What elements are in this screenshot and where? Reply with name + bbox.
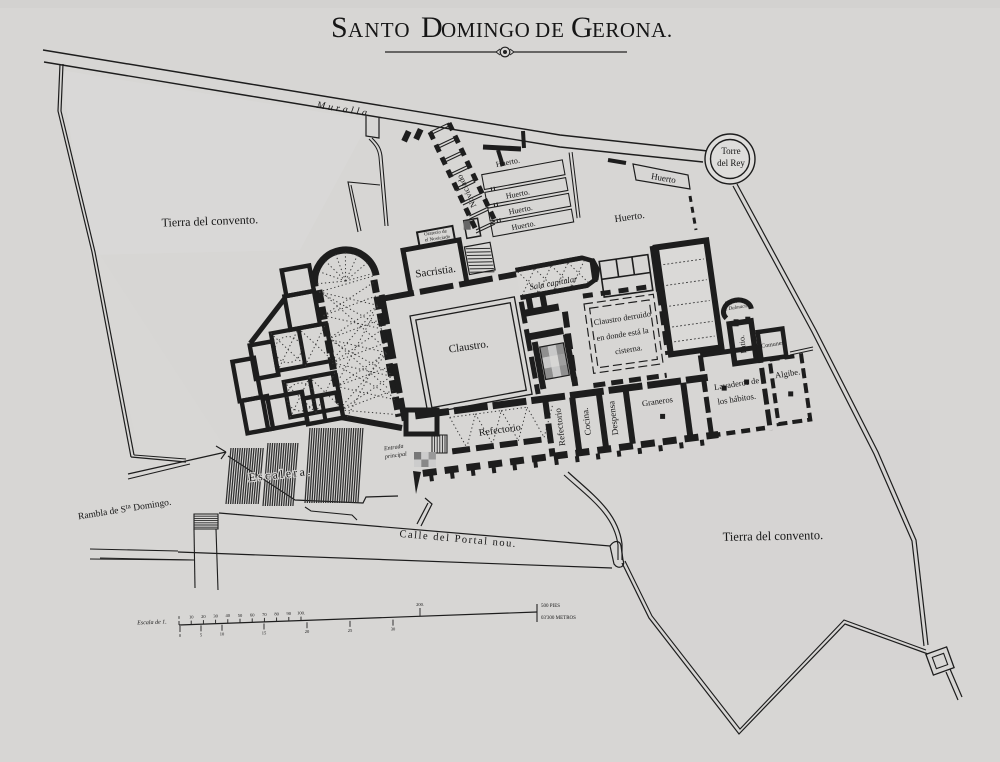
svg-text:G: G bbox=[571, 11, 593, 44]
svg-text:15: 15 bbox=[262, 630, 267, 635]
svg-text:30: 30 bbox=[391, 627, 396, 632]
svg-text:70: 70 bbox=[262, 612, 267, 617]
svg-text:D: D bbox=[421, 11, 443, 44]
svg-text:03'300 METROS: 03'300 METROS bbox=[541, 616, 576, 621]
svg-text:ERONA.: ERONA. bbox=[592, 18, 673, 42]
svg-text:60: 60 bbox=[250, 612, 255, 617]
svg-text:500 PIES: 500 PIES bbox=[541, 604, 560, 609]
svg-text:20: 20 bbox=[305, 629, 310, 634]
svg-text:50: 50 bbox=[238, 613, 243, 618]
svg-text:90: 90 bbox=[287, 611, 292, 616]
svg-text:40: 40 bbox=[226, 613, 231, 618]
svg-text:25: 25 bbox=[348, 628, 353, 633]
svg-text:200.: 200. bbox=[416, 602, 424, 607]
svg-text:DE: DE bbox=[535, 18, 565, 42]
svg-text:S: S bbox=[331, 11, 348, 44]
svg-text:del Rey: del Rey bbox=[717, 158, 745, 168]
svg-text:10: 10 bbox=[189, 615, 194, 620]
svg-text:30: 30 bbox=[213, 614, 218, 619]
svg-text:10: 10 bbox=[220, 632, 225, 637]
svg-text:Tierra del convento.: Tierra del convento. bbox=[723, 528, 824, 544]
svg-text:Torre: Torre bbox=[721, 146, 740, 156]
svg-text:20: 20 bbox=[201, 614, 206, 619]
svg-text:Escala de 1.: Escala de 1. bbox=[136, 619, 167, 626]
svg-text:ANTO: ANTO bbox=[348, 18, 411, 42]
svg-text:80: 80 bbox=[274, 611, 279, 616]
svg-text:OMINGO: OMINGO bbox=[441, 18, 530, 42]
svg-text:100.: 100. bbox=[297, 611, 305, 616]
